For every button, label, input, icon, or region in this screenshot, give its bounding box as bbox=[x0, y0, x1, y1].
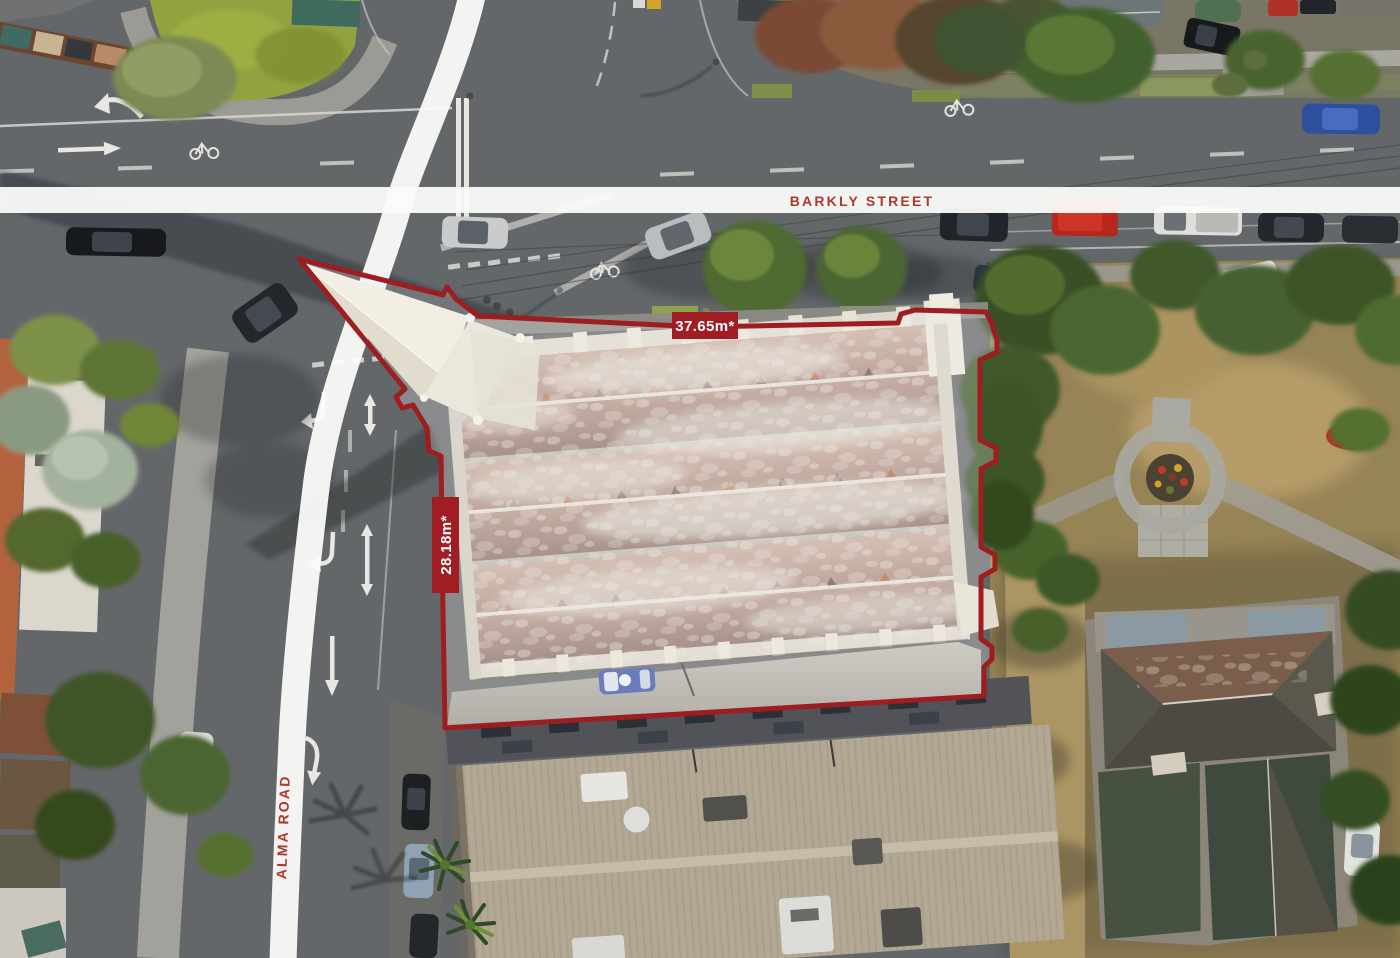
aerial-scene: 37.65m* 28.18m* BARKLY STREET ALMA ROAD bbox=[0, 0, 1400, 958]
hedge-shade bbox=[255, 27, 345, 83]
car bbox=[1342, 216, 1398, 244]
tree-canopy bbox=[817, 226, 907, 310]
aerial-site-photo: 37.65m* 28.18m* BARKLY STREET ALMA ROAD bbox=[0, 0, 1400, 958]
green-tent bbox=[1195, 0, 1241, 22]
car bbox=[1268, 0, 1298, 16]
mansion-building bbox=[1084, 595, 1363, 949]
barkly-street-band bbox=[0, 187, 1400, 213]
depth-value: 28.18m* bbox=[438, 515, 455, 575]
car bbox=[1302, 103, 1381, 134]
slate-roof bbox=[1098, 763, 1206, 939]
frontage-measurement: 37.65m* bbox=[672, 312, 738, 339]
car bbox=[66, 227, 166, 257]
depth-measurement: 28.18m* bbox=[432, 497, 459, 593]
grass-patch bbox=[912, 90, 960, 102]
car bbox=[401, 774, 431, 831]
tree-canopy bbox=[1015, 7, 1155, 103]
car bbox=[633, 0, 645, 8]
chimney bbox=[1151, 752, 1187, 776]
car bbox=[1258, 212, 1324, 242]
turret-cap bbox=[929, 293, 954, 309]
tree-canopy bbox=[703, 220, 807, 316]
tree-canopy bbox=[42, 430, 138, 510]
tree-canopy bbox=[113, 36, 237, 120]
house-roof bbox=[1340, 0, 1400, 18]
car bbox=[409, 913, 439, 958]
frontage-value: 37.65m* bbox=[675, 318, 735, 335]
power-pole bbox=[557, 287, 563, 293]
tree-shadow bbox=[160, 355, 320, 445]
grass-patch bbox=[752, 84, 792, 98]
roof-wear bbox=[1136, 652, 1307, 688]
tarp bbox=[292, 0, 361, 27]
barkly-street-label: BARKLY STREET bbox=[790, 193, 935, 209]
car bbox=[441, 216, 508, 249]
car bbox=[1300, 0, 1336, 14]
car bbox=[647, 0, 661, 9]
glass-panel bbox=[1107, 613, 1188, 648]
